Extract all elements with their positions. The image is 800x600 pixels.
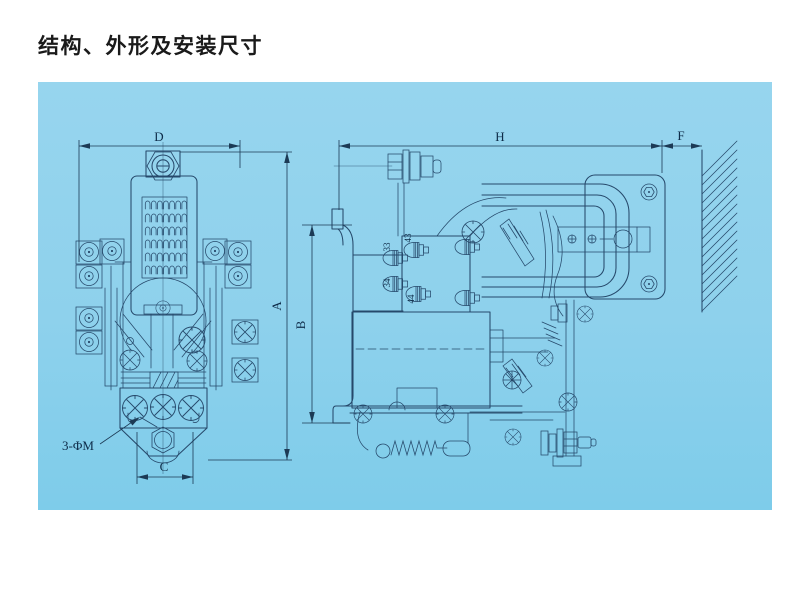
dim-b-label: B	[293, 320, 308, 329]
drawing-panel: D A C	[38, 82, 772, 510]
dim-c-label: C	[160, 459, 169, 474]
terminal-label-43: 43	[403, 233, 413, 243]
dim-d: D	[79, 129, 240, 262]
front-view: D A C	[62, 129, 292, 484]
arc-chute-vents	[145, 201, 186, 274]
dim-f-label: F	[677, 128, 684, 143]
aux-terminal-block: 33 43 34 44	[382, 233, 480, 312]
slide: 结构、外形及安装尺寸	[0, 0, 800, 600]
dim-a-label: A	[269, 301, 284, 311]
dim-b: B	[293, 225, 352, 423]
front-base-block	[120, 388, 207, 463]
dim-d-label: D	[154, 129, 163, 144]
dim-h-label: H	[495, 129, 504, 144]
front-body	[131, 176, 197, 315]
front-hinge-band	[121, 372, 206, 388]
side-mounting-bracket	[332, 209, 522, 423]
front-side-frames	[105, 262, 222, 390]
side-coil-body	[352, 255, 503, 408]
terminal-label-34: 34	[382, 278, 392, 288]
page-title: 结构、外形及安装尺寸	[38, 30, 263, 60]
side-top-bolt	[334, 150, 441, 236]
return-spring	[354, 402, 565, 458]
right-fastener-column	[505, 300, 596, 466]
terminal-label-44: 44	[406, 294, 416, 304]
mounting-holes-label: 3-ΦM	[62, 438, 94, 453]
technical-drawing: D A C	[38, 82, 772, 510]
terminal-label-33: 33	[382, 242, 392, 252]
wall-hatch	[702, 141, 737, 312]
front-right-terminals	[203, 239, 258, 382]
side-view: 33 43 34 44	[293, 128, 737, 466]
dim-c: C	[137, 432, 193, 484]
dim-f: F	[662, 128, 702, 149]
mounting-holes-callout: 3-ΦM	[62, 415, 157, 453]
